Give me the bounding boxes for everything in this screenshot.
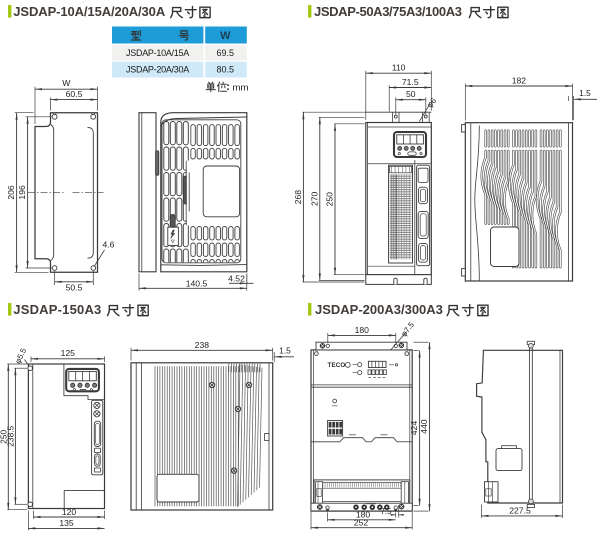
svg-text:69.5: 69.5: [217, 48, 235, 58]
svg-text:W: W: [220, 30, 231, 42]
svg-text:250: 250: [325, 192, 335, 207]
svg-text:182: 182: [512, 75, 527, 85]
svg-text:JSDAP-50A3/75A3/100A3: JSDAP-50A3/75A3/100A3: [314, 4, 462, 19]
svg-text:125: 125: [61, 348, 76, 358]
svg-text:71.5: 71.5: [402, 77, 419, 87]
svg-text:180: 180: [355, 325, 370, 335]
svg-text:JSDAP-200A3/300A3: JSDAP-200A3/300A3: [315, 302, 443, 317]
svg-text:206: 206: [6, 185, 16, 200]
svg-text:4.6: 4.6: [103, 240, 115, 250]
svg-text:424: 424: [409, 421, 419, 436]
svg-text:270: 270: [309, 191, 319, 206]
svg-text:50: 50: [406, 89, 416, 99]
svg-text:80.5: 80.5: [217, 65, 235, 75]
svg-text:140.5: 140.5: [186, 278, 208, 288]
svg-text:135: 135: [59, 518, 74, 528]
svg-text:1.5: 1.5: [579, 88, 591, 98]
svg-text:4.52: 4.52: [228, 273, 245, 283]
svg-text:227.5: 227.5: [509, 505, 531, 515]
svg-text:50.5: 50.5: [66, 283, 83, 293]
svg-text:7.5: 7.5: [381, 507, 393, 516]
svg-text:mm: mm: [233, 83, 249, 94]
svg-text:JSDAP-150A3: JSDAP-150A3: [13, 302, 101, 317]
svg-text:238.5: 238.5: [6, 425, 16, 446]
svg-text:120: 120: [62, 507, 77, 517]
svg-text:1.5: 1.5: [279, 346, 291, 356]
svg-text:110: 110: [392, 62, 406, 72]
svg-text:60.5: 60.5: [66, 89, 83, 99]
svg-text:JSDAP-10A/15A/20A/30A: JSDAP-10A/15A/20A/30A: [13, 4, 166, 19]
svg-text:196: 196: [17, 185, 27, 200]
svg-text:JSDAP-10A/15A: JSDAP-10A/15A: [126, 48, 189, 58]
svg-text:W: W: [62, 78, 71, 88]
svg-text:238: 238: [195, 340, 210, 350]
svg-text:TECO: TECO: [328, 362, 346, 369]
svg-text:268: 268: [293, 190, 303, 205]
svg-text:252: 252: [354, 518, 369, 528]
svg-text:440: 440: [419, 419, 429, 434]
svg-text:JSDAP-20A/30A: JSDAP-20A/30A: [126, 65, 189, 75]
